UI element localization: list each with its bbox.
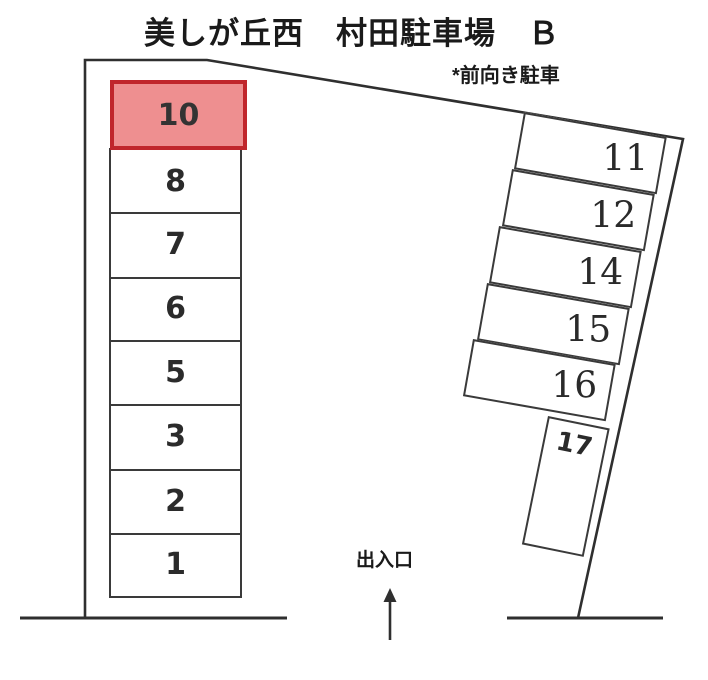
- parking-space-1[interactable]: 1: [111, 533, 240, 596]
- space-label: 15: [566, 312, 612, 348]
- space-label: 2: [165, 484, 186, 519]
- space-label: 16: [552, 368, 598, 404]
- space-label: 10: [158, 98, 200, 133]
- space-label: 7: [165, 227, 186, 262]
- parking-space-3[interactable]: 3: [111, 404, 240, 469]
- space-label: 8: [165, 164, 186, 199]
- parking-space-10[interactable]: 10: [110, 80, 247, 150]
- parking-space-8[interactable]: 8: [111, 150, 240, 212]
- space-label: 3: [165, 419, 186, 454]
- parking-space-7[interactable]: 7: [111, 212, 240, 277]
- space-label: 5: [165, 355, 186, 390]
- space-label: 17: [554, 427, 595, 464]
- space-label: 14: [578, 255, 624, 291]
- parking-map: 美しが丘西 村田駐車場 Ｂ *前向き駐車 10 8 7 6 5: [0, 0, 708, 680]
- space-label: 11: [603, 141, 649, 177]
- parking-space-5[interactable]: 5: [111, 340, 240, 404]
- space-label: 1: [165, 547, 186, 582]
- parking-space-6[interactable]: 6: [111, 277, 240, 340]
- parking-space-2[interactable]: 2: [111, 469, 240, 533]
- space-label: 12: [591, 198, 637, 234]
- entrance-label: 出入口: [356, 545, 413, 572]
- entrance-arrow-icon: [384, 588, 397, 640]
- space-label: 6: [165, 291, 186, 326]
- left-parking-column: 8 7 6 5 3 2 1: [109, 148, 242, 598]
